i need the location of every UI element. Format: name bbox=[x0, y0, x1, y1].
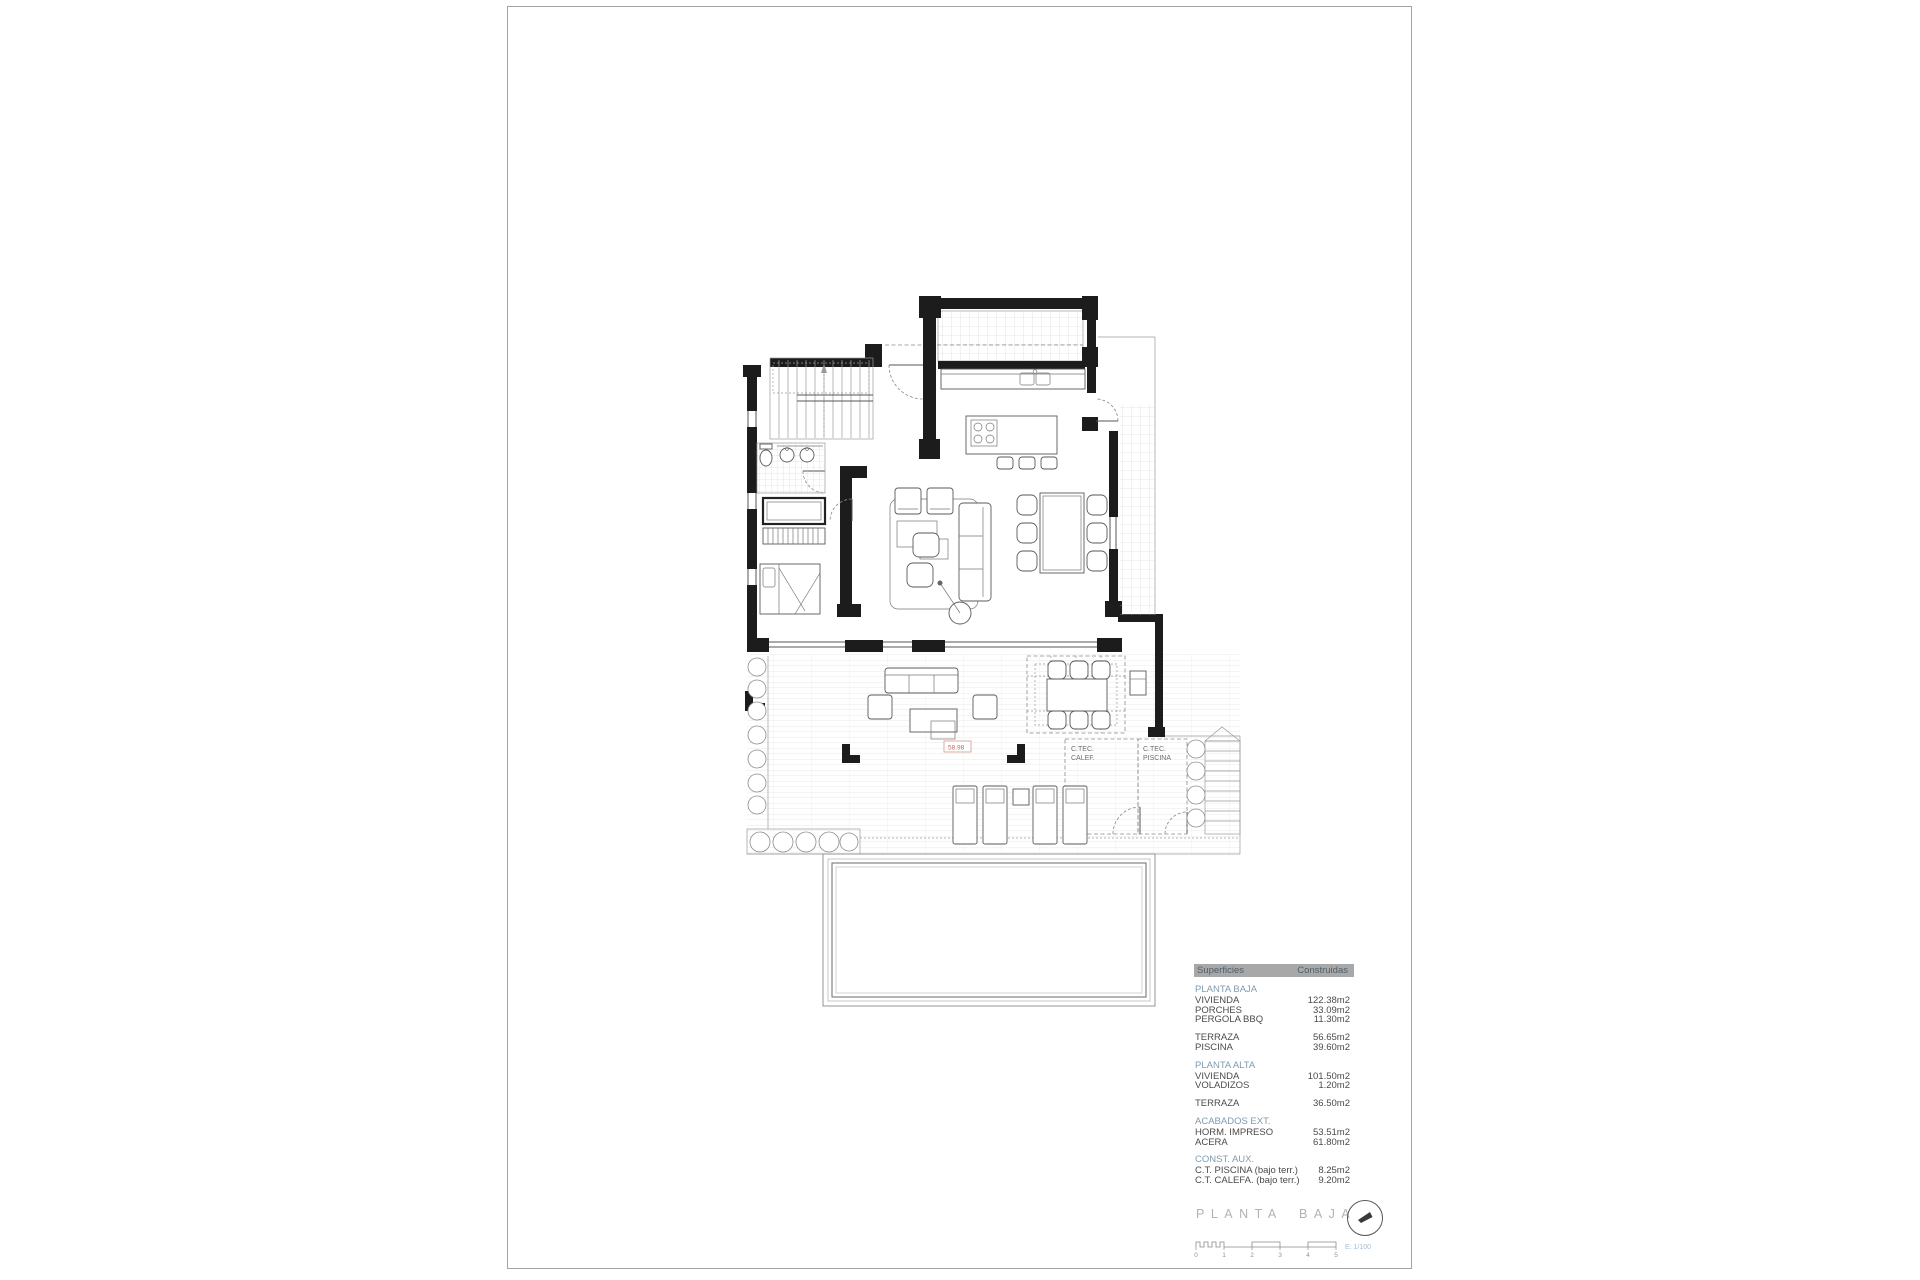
bed bbox=[760, 564, 820, 614]
section-title: PLANTA BAJA bbox=[1195, 985, 1354, 995]
lounger-side-table bbox=[1013, 789, 1029, 805]
bathroom bbox=[757, 443, 825, 493]
toilet-tank bbox=[760, 444, 772, 449]
areas-section-exterior: TERRAZA56.65m2 PISCINA39.60m2 bbox=[1194, 1033, 1354, 1053]
dining-set bbox=[1017, 493, 1107, 573]
bedroom bbox=[760, 564, 820, 614]
section-title: CONST. AUX. bbox=[1195, 1155, 1354, 1165]
scale-tick: 4 bbox=[1306, 1252, 1310, 1259]
outdoor-table bbox=[910, 709, 957, 732]
area-row: VOLADIZOS1.20m2 bbox=[1194, 1081, 1354, 1091]
section-title: ACABADOS EXT. bbox=[1195, 1117, 1354, 1127]
porch-table bbox=[1047, 679, 1107, 711]
bbq-grill bbox=[1130, 671, 1146, 695]
dining-table bbox=[1040, 493, 1084, 573]
areas-table-header: Superficies Construidas bbox=[1194, 964, 1354, 977]
area-row: C.T. CALEFA. (bajo terr.)9.20m2 bbox=[1194, 1176, 1354, 1186]
areas-section-const-aux: CONST. AUX. C.T. PISCINA (bajo terr.)8.2… bbox=[1194, 1155, 1354, 1185]
kitchen bbox=[941, 369, 1085, 469]
area-row: ACERA61.80m2 bbox=[1194, 1138, 1354, 1148]
areas-col-superficies: Superficies bbox=[1197, 966, 1244, 976]
outdoor-sofa bbox=[885, 668, 958, 693]
side-terrace bbox=[1120, 405, 1155, 615]
svg-text:PISCINA: PISCINA bbox=[1143, 755, 1171, 762]
armchair bbox=[895, 488, 921, 514]
areas-section-terraza-alta: TERRAZA36.50m2 bbox=[1194, 1099, 1354, 1109]
room-label-piscina: C.TEC. bbox=[1143, 746, 1166, 753]
areas-col-construidas: Construidas bbox=[1297, 966, 1348, 976]
scale-tick: 1 bbox=[1222, 1252, 1226, 1259]
areas-section-planta-alta: PLANTA ALTA VIVIENDA101.50m2 VOLADIZOS1.… bbox=[1194, 1061, 1354, 1091]
area-row: PERGOLA BBQ11.30m2 bbox=[1194, 1015, 1354, 1025]
pouf bbox=[907, 563, 933, 587]
pool bbox=[823, 854, 1155, 1006]
sink bbox=[800, 448, 814, 462]
area-row: PISCINA39.60m2 bbox=[1194, 1043, 1354, 1053]
stool bbox=[997, 457, 1013, 469]
sink bbox=[780, 448, 794, 462]
sofa bbox=[959, 503, 991, 601]
section-title: PLANTA ALTA bbox=[1195, 1061, 1354, 1071]
scale-tick: 3 bbox=[1278, 1252, 1282, 1259]
floor-plan-drawing: C.TEC. CALEF. C.TEC. PISCINA 58.98 bbox=[735, 281, 1255, 1021]
scale-label: E: 1/100 bbox=[1345, 1244, 1371, 1251]
stool bbox=[1041, 457, 1057, 469]
areas-table: Superficies Construidas PLANTA BAJA VIVI… bbox=[1194, 964, 1354, 1186]
wardrobes bbox=[763, 498, 825, 544]
scale-tick: 0 bbox=[1194, 1252, 1198, 1259]
toilet bbox=[760, 450, 772, 466]
drawing-sheet: C.TEC. CALEF. C.TEC. PISCINA 58.98 bbox=[507, 6, 1412, 1269]
areas-section-planta-baja: PLANTA BAJA VIVIENDA122.38m2 PORCHES33.0… bbox=[1194, 985, 1354, 1025]
scale-tick: 2 bbox=[1250, 1252, 1254, 1259]
kitchen-counter bbox=[941, 369, 1085, 389]
outdoor-armchair bbox=[973, 695, 997, 719]
level-annotation: 58.98 bbox=[944, 741, 971, 752]
scale-bar: 0 1 2 3 4 5 E: 1/100 bbox=[1188, 1231, 1388, 1261]
staircase bbox=[770, 358, 873, 439]
outdoor-armchair bbox=[868, 695, 892, 719]
armchair bbox=[927, 488, 953, 514]
scale-tick: 5 bbox=[1334, 1252, 1338, 1259]
room-label-calef: C.TEC. bbox=[1071, 746, 1094, 753]
level-mark: 58.98 bbox=[948, 745, 965, 752]
pouf bbox=[913, 533, 939, 557]
areas-section-acabados: ACABADOS EXT. HORM. IMPRESO53.51m2 ACERA… bbox=[1194, 1117, 1354, 1147]
svg-text:CALEF.: CALEF. bbox=[1071, 755, 1095, 762]
living-room-furniture bbox=[890, 488, 991, 624]
area-row: TERRAZA36.50m2 bbox=[1194, 1099, 1354, 1109]
stool bbox=[1019, 457, 1035, 469]
pergola-bbq-terrace bbox=[885, 296, 1098, 367]
